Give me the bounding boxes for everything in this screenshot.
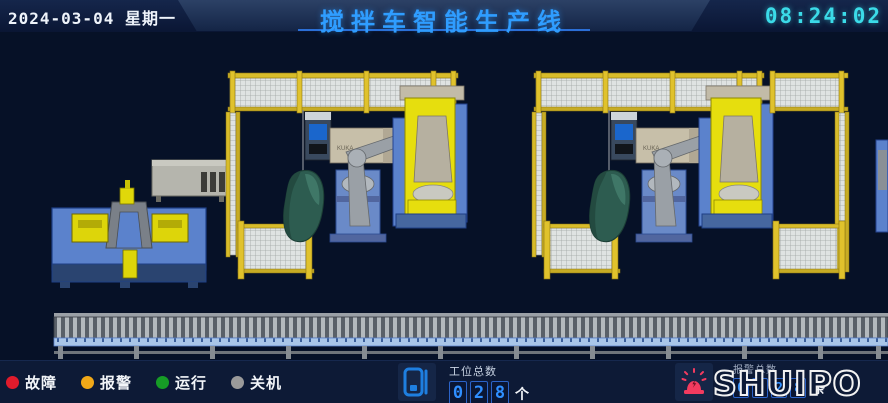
shuipo-logo: SHUIPO	[711, 362, 887, 403]
status-legend: 故障 报警 运行 关机	[6, 361, 306, 403]
legend-label: 运行	[175, 372, 207, 393]
legend-item-alarm: 报警	[81, 372, 132, 393]
off-status-dot	[231, 376, 244, 389]
station-icon-box	[398, 363, 436, 401]
center-lift	[123, 250, 137, 278]
workstation-icon	[403, 366, 431, 398]
production-line-dashboard: KUKA	[0, 0, 888, 403]
center-clamp-tower	[120, 188, 134, 204]
alarm-beacon-icon	[680, 367, 708, 397]
fault-status-dot	[6, 376, 19, 389]
status-bar: 故障 报警 运行 关机 工位总数	[0, 360, 888, 403]
station-counter: 工位总数 0 2 8 个	[449, 363, 529, 403]
page-title: 搅拌车智能生产线	[0, 2, 888, 37]
digit: 0	[449, 381, 467, 403]
legend-item-running: 运行	[156, 372, 207, 393]
legend-item-off: 关机	[231, 372, 282, 393]
robot-welding-cell-2	[532, 71, 773, 279]
digit: 8	[491, 381, 509, 403]
legend-item-fault: 故障	[6, 372, 57, 393]
alarm-status-dot	[81, 376, 94, 389]
scene-canvas: KUKA	[0, 0, 888, 403]
header-bar: 2024-03-04 星期一 搅拌车智能生产线 08:24:02	[0, 0, 888, 32]
digit: 2	[470, 381, 488, 403]
safety-fence-right-boundary	[770, 71, 849, 279]
clock-display: 08:24:02	[765, 4, 882, 28]
running-status-dot	[156, 376, 169, 389]
electrical-cabinet	[152, 160, 228, 202]
conveyor-line	[54, 313, 888, 359]
station-counter-label: 工位总数	[449, 363, 529, 379]
shuipo-logo-text: SHUIPO	[713, 364, 862, 403]
partial-panel-right-edge	[876, 140, 888, 232]
robot-welding-cell-1	[226, 71, 467, 279]
alarm-icon-box	[675, 363, 713, 401]
legend-label: 关机	[250, 372, 282, 393]
legend-label: 报警	[100, 372, 132, 393]
legend-label: 故障	[25, 372, 57, 393]
left-clamp-machine	[52, 160, 228, 288]
station-counter-unit: 个	[515, 383, 529, 403]
station-counter-digits: 0 2 8 个	[449, 381, 529, 403]
